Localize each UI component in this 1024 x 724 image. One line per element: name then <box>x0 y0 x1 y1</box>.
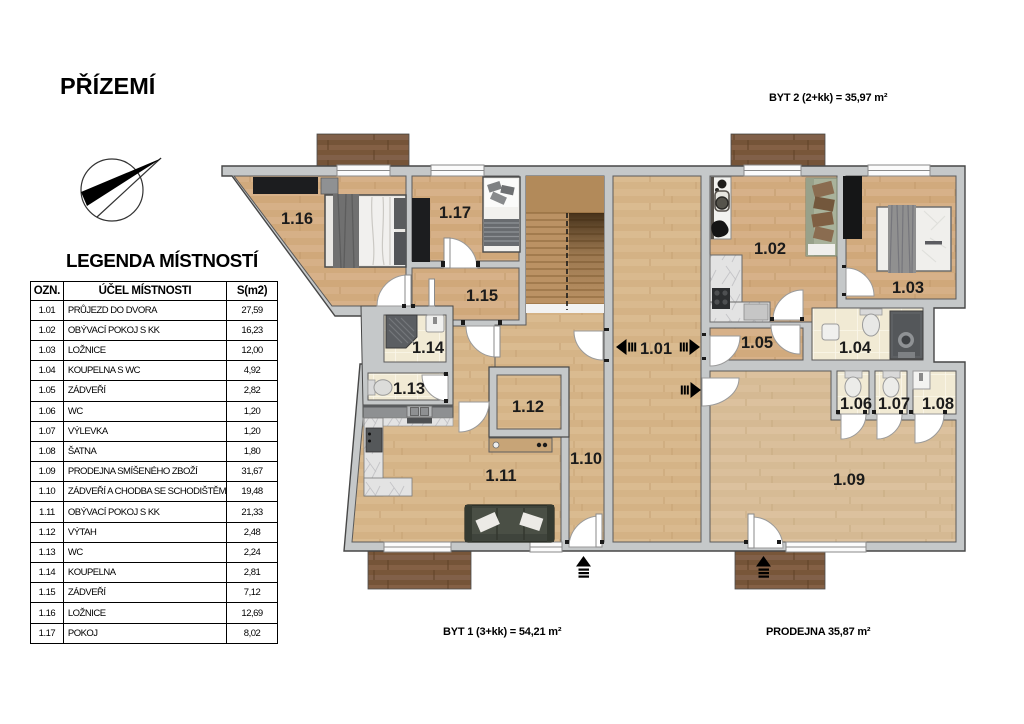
svg-text:1.01: 1.01 <box>640 340 672 358</box>
svg-text:1.10: 1.10 <box>570 450 602 468</box>
svg-text:1.15: 1.15 <box>466 287 498 305</box>
svg-text:1.06: 1.06 <box>840 395 872 413</box>
svg-text:1.03: 1.03 <box>892 279 924 297</box>
svg-text:1.08: 1.08 <box>922 395 954 413</box>
svg-text:1.16: 1.16 <box>281 210 313 228</box>
svg-text:1.17: 1.17 <box>439 204 471 222</box>
svg-text:1.12: 1.12 <box>512 398 544 416</box>
svg-text:1.09: 1.09 <box>833 471 865 489</box>
svg-text:1.05: 1.05 <box>741 334 773 352</box>
svg-text:1.07: 1.07 <box>878 395 910 413</box>
svg-text:1.14: 1.14 <box>412 339 445 357</box>
svg-text:1.04: 1.04 <box>839 339 872 357</box>
svg-text:1.11: 1.11 <box>485 467 516 485</box>
svg-text:1.02: 1.02 <box>754 240 786 258</box>
svg-text:1.13: 1.13 <box>393 380 425 398</box>
